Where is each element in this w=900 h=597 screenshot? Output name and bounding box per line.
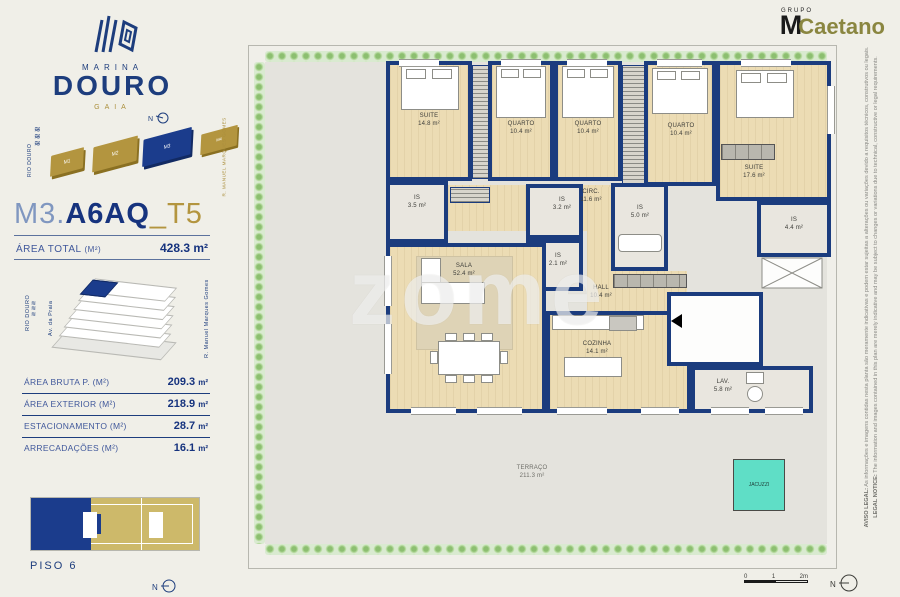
block-m1-label: M1 [63, 158, 70, 166]
name: IS [414, 195, 420, 201]
building-river-waves-icon: ≋≋≋ [31, 302, 36, 318]
block-m3-label: M3 [163, 143, 170, 151]
area-row-value: 16.1 m² [174, 442, 208, 454]
closet-strip [450, 187, 490, 203]
chair [463, 375, 475, 383]
wardrobe-units [721, 144, 775, 160]
name: QUARTO [508, 121, 535, 127]
pillow [657, 71, 676, 80]
name: IS [559, 197, 565, 203]
area-row-value: 28.7 m² [174, 420, 208, 432]
stairwell-icon [761, 257, 823, 289]
area-total-value: 428.3 m² [160, 241, 208, 255]
pillow [406, 69, 426, 79]
site-river-label: RIO DOURO [27, 117, 33, 177]
area: 5.8 m² [714, 387, 732, 393]
floor-unit-highlight [31, 498, 91, 550]
floor-plan: JACUZZI SUITE14.8 m² QUARTO10.4 m² QUART… [248, 45, 837, 569]
building-logo-icon [82, 12, 144, 54]
window [411, 407, 456, 415]
jacuzzi: JACUZZI [733, 459, 785, 511]
area: 10.4 m² [510, 129, 532, 135]
scale-bar: 0 1 2m [744, 574, 808, 583]
unit: m² [198, 444, 208, 453]
name: TERRAÇO [517, 465, 548, 471]
window [567, 59, 607, 67]
table-row: ÁREA BRUTA P. (M²) 209.3 m² [22, 372, 210, 394]
value: 16.1 [174, 442, 195, 454]
unit-title-block: M3.A6AQ_T5 ÁREA TOTAL (M²) 428.3 m² [14, 198, 210, 260]
floor-grid-line [141, 498, 142, 550]
plan-north-icon: N [830, 573, 858, 593]
area-total-label: ÁREA TOTAL (M²) [16, 244, 101, 255]
area: 14.8 m² [418, 121, 440, 127]
name: IS [791, 217, 797, 223]
window [477, 407, 522, 415]
unit: m² [198, 422, 208, 431]
building-core [667, 292, 763, 366]
room-label-lav: LAV.5.8 m² [693, 378, 753, 395]
value: 209.3 [168, 376, 196, 388]
room-label-is50: IS5.0 m² [617, 204, 663, 221]
title-rule-top [14, 235, 210, 236]
room-label-terraco: TERRAÇO211.3 m² [497, 464, 567, 481]
window [657, 59, 702, 67]
room-label-is44: IS4.4 m² [761, 216, 827, 233]
legal-en-text: The information and images contained in … [873, 56, 879, 473]
chair [445, 375, 457, 383]
legal-en: LEGAL NOTICE: The information and images… [872, 27, 881, 547]
room-label-suite2: SUITE17.6 m² [719, 164, 789, 181]
area-total-unit: (M²) [85, 245, 102, 254]
site-diagram: RIO DOURO ≋≋≋ M1 M2 M3 M4 N R. MANUEL MA… [18, 112, 213, 192]
area: 5.0 m² [631, 213, 649, 219]
legal-pt-text: As informações e imagens contidas nesta … [864, 46, 870, 486]
name: CIRC. [582, 189, 599, 195]
hedge-bottom [265, 544, 827, 555]
unit-prefix: M3. [14, 198, 65, 230]
bed [401, 66, 459, 110]
legal-pt-label: AVISO LEGAL: [864, 488, 870, 527]
floor-position-diagram [30, 497, 200, 551]
window [399, 59, 439, 67]
room-label-is32: IS3.2 m² [543, 196, 581, 213]
kitchen-island [564, 357, 622, 377]
pillow [590, 69, 608, 78]
area-total-label-text: ÁREA TOTAL [16, 244, 81, 255]
building-render: RIO DOURO ≋≋≋ Av. da Praia R. Manuel Mar… [40, 268, 190, 363]
area: 3.2 m² [553, 205, 571, 211]
pillow [501, 69, 519, 78]
value: 28.7 [174, 420, 195, 432]
table-row: ESTACIONAMENTO (M²) 28.7 m² [22, 416, 210, 438]
block-m2: M2 [92, 135, 138, 172]
marina-douro-logo: MARINA DOURO GAIA [0, 12, 225, 111]
area: 3.5 m² [408, 203, 426, 209]
area-total-row: ÁREA TOTAL (M²) 428.3 m² [16, 241, 208, 255]
area-row-label: ARRECADAÇÕES (M²) [24, 443, 118, 453]
jacuzzi-label: JACUZZI [749, 482, 770, 488]
window [711, 407, 749, 415]
window [641, 407, 679, 415]
building-avenue-label: Av. da Praia [48, 286, 54, 336]
pillow [432, 69, 452, 79]
unit-suffix: _T5 [150, 198, 203, 230]
block-m1: M1 [50, 147, 84, 177]
window [557, 407, 607, 415]
plan-north-letter: N [830, 580, 836, 589]
block-m2-label: M2 [111, 150, 118, 158]
legal-notice: AVISO LEGAL: As informações e imagens co… [863, 27, 881, 547]
area-row-label: ÁREA BRUTA P. (M²) [24, 377, 109, 387]
name: QUARTO [575, 121, 602, 127]
block-m4: M4 [200, 125, 238, 155]
pillow [767, 73, 787, 83]
dining-table [438, 341, 500, 375]
value: 218.9 [168, 398, 196, 410]
window [765, 407, 803, 415]
stove [609, 316, 637, 331]
name: IS [637, 205, 643, 211]
sidebar-north-icon: N [152, 578, 176, 594]
area: 17.6 m² [743, 173, 765, 179]
area-row-label: ÁREA EXTERIOR (M²) [24, 399, 116, 409]
table-row: ARRECADAÇÕES (M²) 16.1 m² [22, 438, 210, 459]
area: 4.4 m² [785, 225, 803, 231]
legal-pt: AVISO LEGAL: As informações e imagens co… [863, 27, 872, 547]
pillow [567, 69, 585, 78]
name: SUITE [420, 113, 439, 119]
river-waves-icon: ≋≋≋ [34, 126, 46, 170]
unit: m² [198, 378, 208, 387]
pillow [523, 69, 541, 78]
area: 10.4 m² [577, 129, 599, 135]
entrance-arrow-icon [671, 314, 682, 328]
block-m3: M3 [142, 127, 192, 167]
name: SUITE [745, 165, 764, 171]
area: 11.6 m² [580, 197, 601, 203]
chair [481, 375, 493, 383]
area: 10.4 m² [670, 131, 692, 137]
bed [652, 68, 708, 114]
scale-segment-dark [744, 580, 776, 583]
areas-table: ÁREA BRUTA P. (M²) 209.3 m² ÁREA EXTERIO… [22, 372, 210, 459]
room-label-quarto3: QUARTO10.4 m² [646, 122, 716, 139]
floor-label: PISO 6 [30, 560, 77, 572]
bathtub [618, 234, 662, 252]
area-row-value: 209.3 m² [168, 376, 208, 388]
window [501, 59, 541, 67]
area: 14.1 m² [586, 349, 608, 355]
unit-code: A6AQ [65, 198, 150, 230]
pillow [681, 71, 700, 80]
site-street-label: R. MANUEL MARQUES GOMES [222, 101, 227, 197]
bed [496, 66, 546, 118]
window [827, 86, 835, 134]
unit: m² [198, 400, 208, 409]
building-street-label: R. Manuel Marques Gomes [204, 248, 210, 358]
hedge-left [254, 62, 265, 544]
room-is-35 [386, 181, 448, 243]
scale-segment-light [776, 580, 808, 583]
sidebar-north-letter: N [152, 583, 158, 592]
chair [500, 351, 508, 364]
floorplan-sheet: MARINA DOURO GAIA RIO DOURO ≋≋≋ M1 M2 M3… [0, 0, 900, 597]
zome-watermark: zome [349, 241, 608, 346]
logo-douro-text: DOURO [0, 72, 225, 100]
area-row-label: ESTACIONAMENTO (M²) [24, 421, 127, 431]
table-row: ÁREA EXTERIOR (M²) 218.9 m² [22, 394, 210, 416]
name: QUARTO [668, 123, 695, 129]
area: 211.3 m² [520, 473, 545, 479]
site-north-label: N [148, 116, 153, 123]
chair [430, 351, 438, 364]
floor-core-cutout [83, 512, 97, 538]
name: LAV. [717, 379, 730, 385]
unit-title: M3.A6AQ_T5 [14, 198, 210, 231]
wardrobe-strip [622, 65, 646, 185]
bed [736, 70, 794, 118]
title-rule-bottom [14, 259, 210, 260]
room-label-quarto2: QUARTO10.4 m² [556, 120, 620, 137]
area-row-value: 218.9 m² [168, 398, 208, 410]
logo-gaia-text: GAIA [0, 104, 225, 111]
room-label-quarto1: QUARTO10.4 m² [490, 120, 552, 137]
legal-en-label: LEGAL NOTICE: [873, 474, 879, 517]
bed [562, 66, 614, 118]
scale-segments [744, 580, 808, 583]
floor-core-cutout [149, 512, 163, 538]
site-north-icon: N [148, 110, 169, 124]
room-label-is35: IS3.5 m² [389, 194, 445, 211]
window [741, 59, 791, 67]
room-label-suite1: SUITE14.8 m² [389, 112, 469, 129]
pillow [741, 73, 761, 83]
